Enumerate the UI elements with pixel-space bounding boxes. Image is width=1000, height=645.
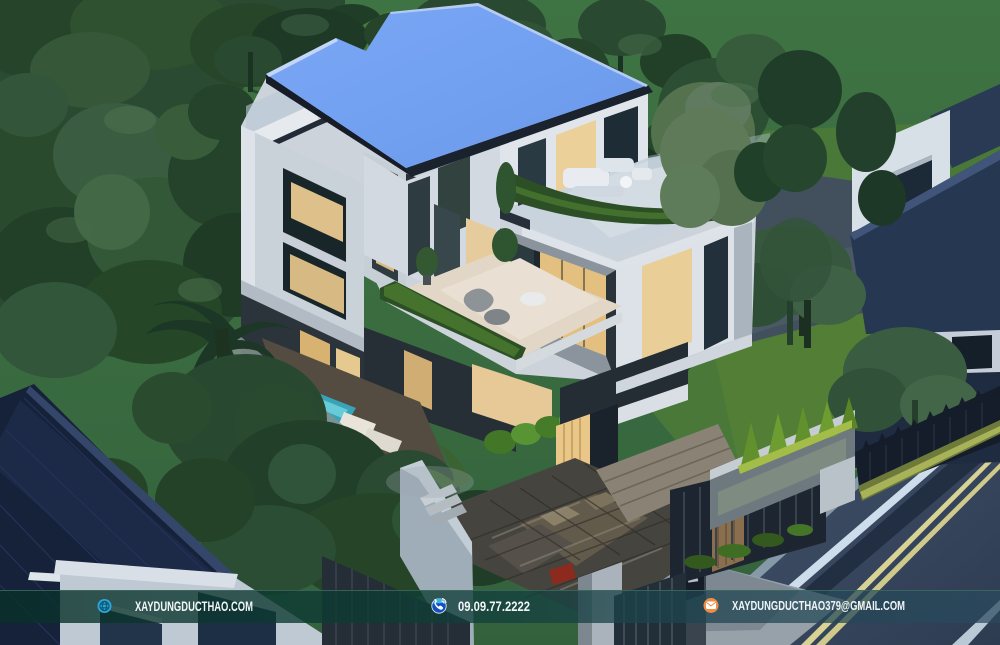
svg-text:XAYDUNGDUCTHAO.COM: XAYDUNGDUCTHAO.COM [135,599,253,614]
svg-text:XAYDUNGDUCTHAO379@GMAIL.COM: XAYDUNGDUCTHAO379@GMAIL.COM [732,598,905,613]
svg-text:09.09.77.2222: 09.09.77.2222 [458,599,530,614]
